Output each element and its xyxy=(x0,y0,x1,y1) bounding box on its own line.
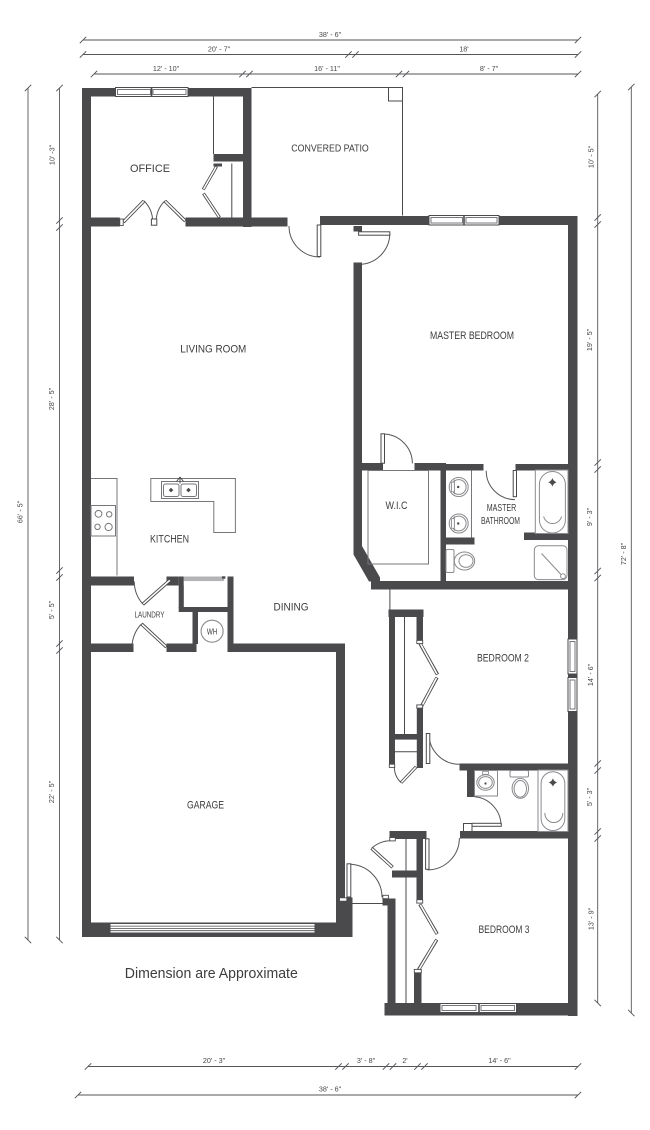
svg-text:38' - 6": 38' - 6" xyxy=(319,30,342,39)
svg-text:LAUNDRY: LAUNDRY xyxy=(135,611,166,620)
svg-text:W.I.C: W.I.C xyxy=(386,500,408,512)
svg-text:GARAGE: GARAGE xyxy=(187,800,224,812)
svg-text:LIVING ROOM: LIVING ROOM xyxy=(180,344,246,356)
svg-text:2': 2' xyxy=(402,1056,408,1065)
svg-text:CONVERED PATIO: CONVERED PATIO xyxy=(291,143,369,155)
svg-text:DINING: DINING xyxy=(274,602,309,614)
svg-text:16' - 11": 16' - 11" xyxy=(314,64,340,73)
svg-text:14' - 6": 14' - 6" xyxy=(586,663,595,686)
svg-text:28' - 5": 28' - 5" xyxy=(47,387,56,410)
svg-text:20' - 7": 20' - 7" xyxy=(208,45,231,54)
svg-text:19' - 5": 19' - 5" xyxy=(585,328,594,351)
svg-text:Dimension are Approximate: Dimension are Approximate xyxy=(125,966,298,982)
svg-text:3' - 8": 3' - 8" xyxy=(357,1056,376,1065)
svg-text:14' - 6": 14' - 6" xyxy=(488,1056,511,1065)
svg-text:12' - 10": 12' - 10" xyxy=(153,64,180,73)
svg-text:20' - 3": 20' - 3" xyxy=(203,1056,226,1065)
svg-text:18': 18' xyxy=(459,45,469,54)
svg-text:8' - 7": 8' - 7" xyxy=(480,64,499,73)
svg-text:KITCHEN: KITCHEN xyxy=(150,534,189,546)
svg-text:MASTER BEDROOM: MASTER BEDROOM xyxy=(430,330,514,342)
svg-text:5' - 3": 5' - 3" xyxy=(585,787,594,806)
svg-text:22' - 5": 22' - 5" xyxy=(47,780,56,803)
svg-text:10' - 5": 10' - 5" xyxy=(587,145,596,168)
svg-text:MASTER: MASTER xyxy=(487,503,517,514)
svg-text:72' - 8": 72' - 8" xyxy=(619,542,628,565)
svg-text:66' - 5": 66' - 5" xyxy=(16,500,25,523)
svg-text:13' - 9": 13' - 9" xyxy=(587,907,596,930)
svg-text:BEDROOM 3: BEDROOM 3 xyxy=(479,924,530,936)
svg-text:BATHROOM: BATHROOM xyxy=(481,516,520,527)
svg-text:9' - 3": 9' - 3" xyxy=(585,507,594,526)
svg-text:38' - 6": 38' - 6" xyxy=(319,1085,342,1094)
svg-text:5' - 5": 5' - 5" xyxy=(47,600,56,619)
svg-text:OFFICE: OFFICE xyxy=(130,163,170,175)
svg-text:10' -3": 10' -3" xyxy=(48,144,57,165)
svg-text:WH: WH xyxy=(207,628,218,637)
svg-text:BEDROOM 2: BEDROOM 2 xyxy=(477,653,529,665)
